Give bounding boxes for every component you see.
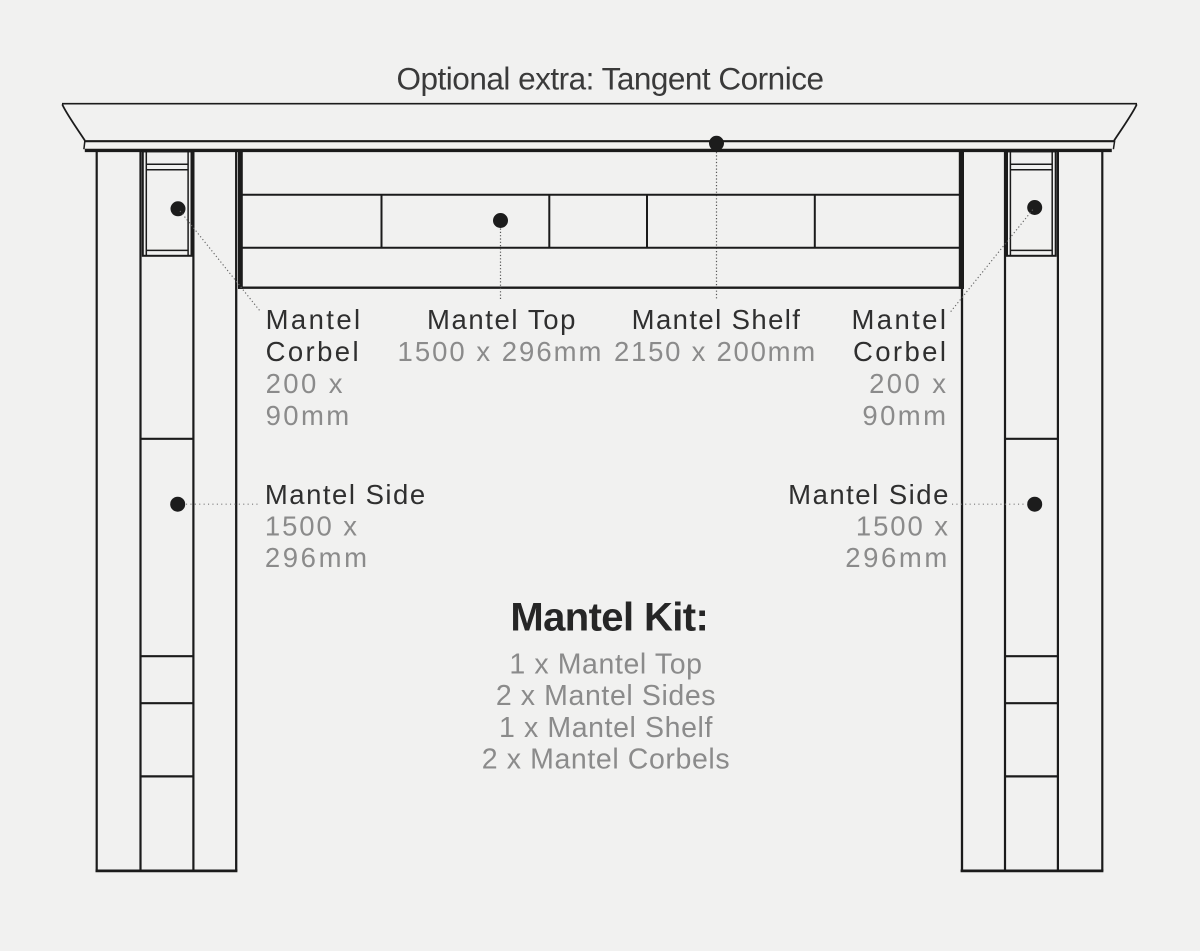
svg-text:2150 x 200mm: 2150 x 200mm [614,336,817,367]
svg-text:Corbel: Corbel [266,336,361,367]
svg-text:1 x Mantel Top: 1 x Mantel Top [509,648,702,680]
svg-text:2 x Mantel Sides: 2 x Mantel Sides [496,680,716,712]
svg-text:Mantel: Mantel [266,304,363,335]
svg-text:Mantel Top: Mantel Top [427,304,577,335]
svg-text:200 x: 200 x [869,368,948,399]
svg-text:Corbel: Corbel [853,336,948,367]
svg-text:2 x Mantel Corbels: 2 x Mantel Corbels [482,744,730,776]
svg-text:200 x: 200 x [266,368,345,399]
svg-text:90mm: 90mm [266,400,352,431]
svg-text:Mantel: Mantel [851,304,948,335]
svg-text:1500 x: 1500 x [856,510,950,541]
svg-text:Optional extra: Tangent Cornic: Optional extra: Tangent Cornice [397,61,824,97]
svg-text:1500 x: 1500 x [265,510,359,541]
svg-text:296mm: 296mm [265,542,370,573]
svg-text:Mantel Kit:: Mantel Kit: [510,596,708,640]
svg-text:Mantel Shelf: Mantel Shelf [632,304,802,335]
svg-text:1500 x 296mm: 1500 x 296mm [398,336,604,367]
svg-text:296mm: 296mm [845,542,950,573]
svg-text:90mm: 90mm [862,400,948,431]
svg-text:Mantel Side: Mantel Side [788,479,950,510]
svg-text:Mantel Side: Mantel Side [265,479,427,510]
svg-text:1 x Mantel Shelf: 1 x Mantel Shelf [499,712,713,744]
